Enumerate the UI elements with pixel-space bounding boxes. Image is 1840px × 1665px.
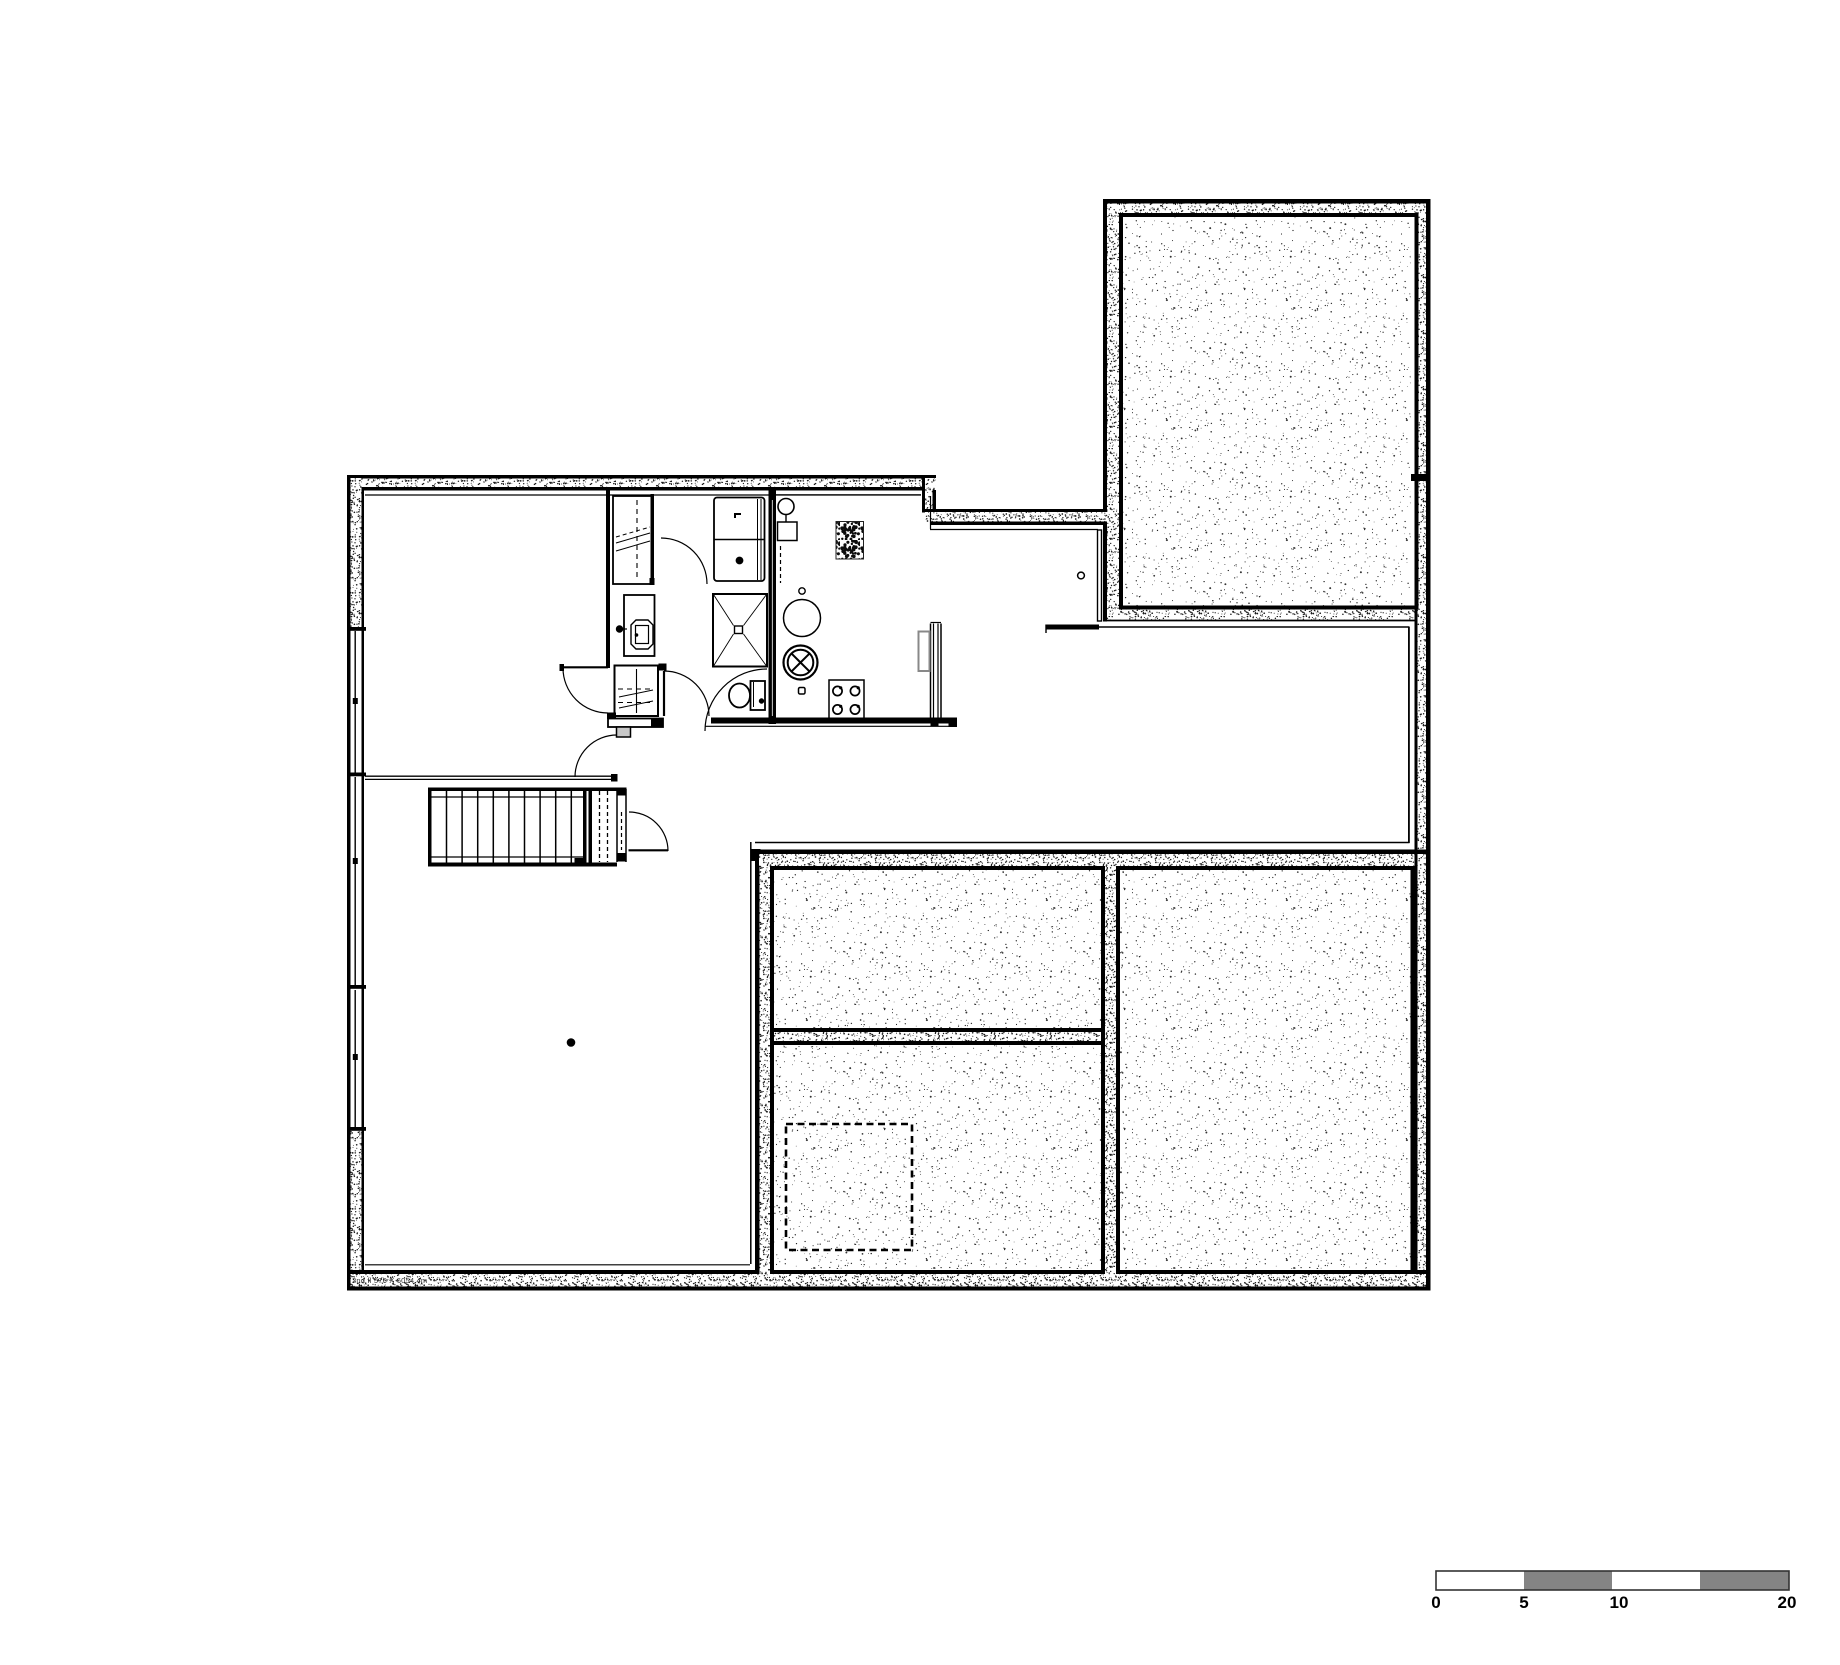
svg-text:10: 10 — [1610, 1593, 1629, 1612]
svg-text:2nd fl 576 X 6054.4m: 2nd fl 576 X 6054.4m — [352, 1276, 427, 1285]
svg-text:0: 0 — [1431, 1593, 1440, 1612]
svg-text:5: 5 — [1519, 1593, 1528, 1612]
svg-text:20: 20 — [1778, 1593, 1797, 1612]
